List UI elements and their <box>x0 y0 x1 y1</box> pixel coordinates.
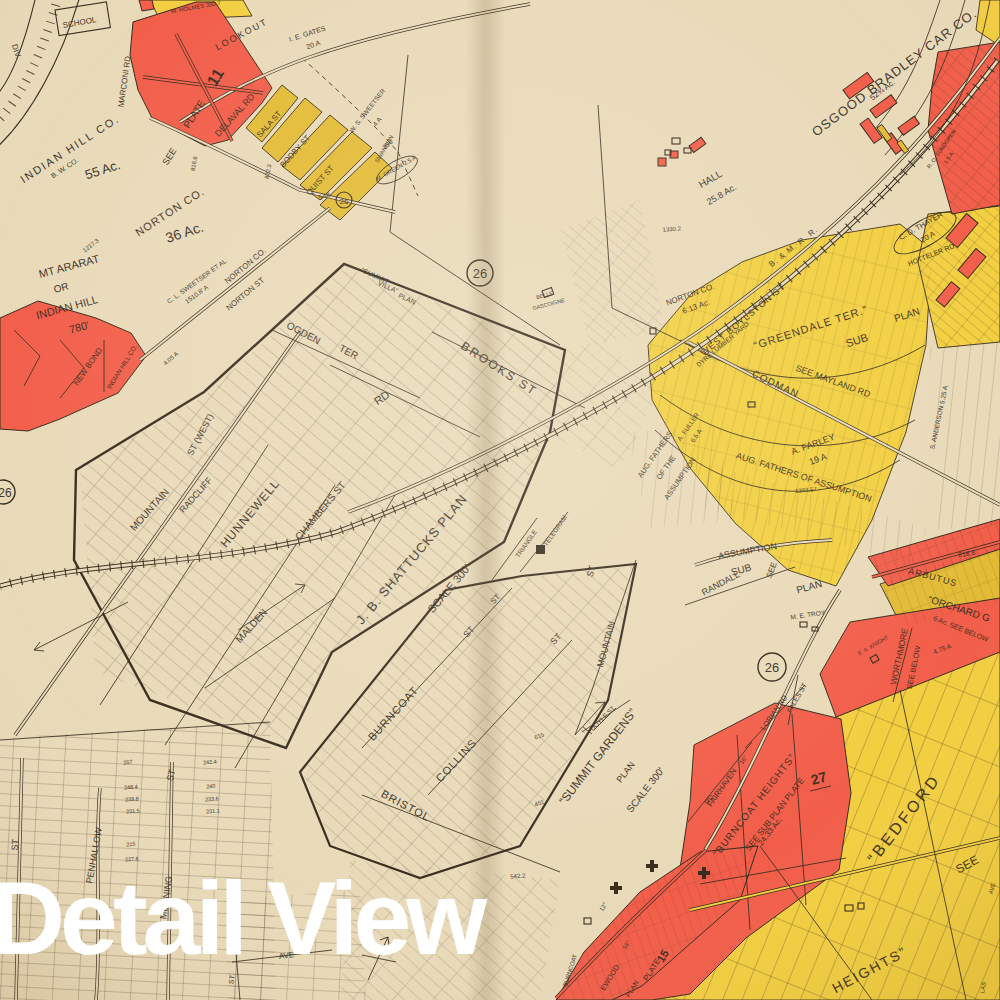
top-tiny-red <box>139 0 154 11</box>
lot-num-d-label: 231.5 <box>126 807 140 814</box>
atlas-map: 26 26 26 26 DIV.SCHOOLW. HOLMES 350.7LOO… <box>0 0 1000 1000</box>
lot-num-b-label: 248.4 <box>124 783 138 790</box>
telegram-building <box>536 545 545 554</box>
atlas-page: 26 26 26 26 DIV.SCHOOLW. HOLMES 350.7LOO… <box>0 0 1000 1000</box>
lot-num-h-label: 240 <box>206 783 216 790</box>
lot-num-j-label: 231.1 <box>206 807 220 814</box>
lot-num-e-label: 215 <box>126 841 136 848</box>
detail-view-overlay: Detail View <box>0 866 482 970</box>
plate-number: 26 <box>473 266 487 281</box>
lot-num-g-label: 242.4 <box>203 758 217 765</box>
lot-num-c-label: 239.8 <box>125 795 139 802</box>
plate-number: 26 <box>0 486 12 500</box>
st-bottom-left-label: ST <box>10 838 21 851</box>
lot-num-a-label: 257 <box>123 759 133 766</box>
anderson-lots <box>930 340 1000 530</box>
lot-num-i-label: 233.6 <box>205 795 219 802</box>
plate-number: 26 <box>340 197 349 206</box>
plate-number: 26 <box>765 660 779 675</box>
